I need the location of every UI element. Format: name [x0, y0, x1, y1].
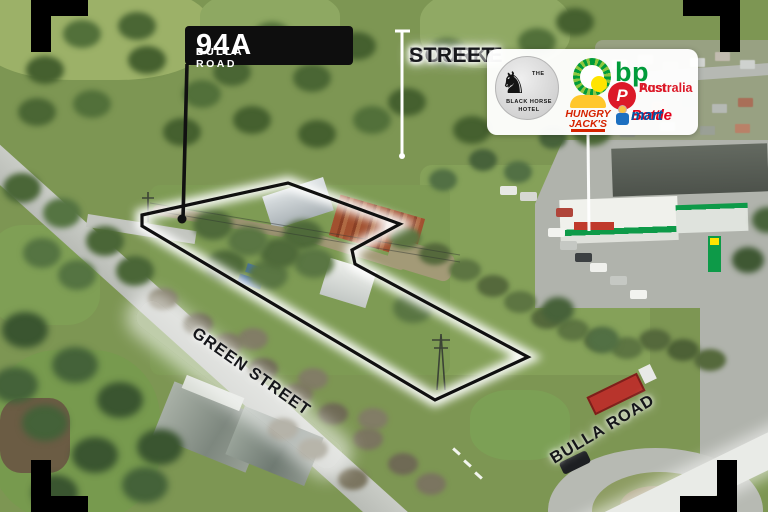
bottlemart-word-blue: mart: [631, 107, 662, 124]
hungry-jacks-bun-icon: [570, 95, 606, 108]
bottlemart-mascot-body: [616, 113, 629, 125]
amenities-pointer-line: [588, 134, 589, 231]
address-plate: 94A BULLA ROAD BULLA: [185, 26, 353, 65]
corner-bracket-top-left: [31, 0, 51, 52]
corner-bracket-bottom-left: [31, 496, 88, 512]
australia-post-monogram: P: [616, 86, 627, 106]
boundary-line: [142, 183, 528, 400]
bp-helios-icon: [573, 58, 611, 96]
black-horse-hotel-logo: ♞ THE BLACK HORSE HOTEL: [495, 56, 559, 120]
bourke-pointer-line: [395, 31, 410, 159]
address-suburb: BULLA: [196, 46, 244, 59]
black-horse-text-2: BLACK HORSE: [506, 99, 552, 105]
amenities-panel: ♞ THE BLACK HORSE HOTEL bp P Australia P…: [487, 49, 698, 135]
black-horse-text-3: HOTEL: [506, 107, 552, 113]
corner-bracket-bottom-right: [680, 496, 737, 512]
boundary-glow: [142, 183, 528, 400]
horse-icon: ♞: [500, 69, 527, 99]
listing-photo-stage: GREEN STREET BULLA ROAD BOURKE STREET 94…: [0, 0, 768, 512]
corner-bracket-top-right: [720, 0, 740, 52]
bp-helios-ring: [580, 65, 604, 89]
hungry-jacks-line2: JACK'S: [563, 119, 613, 130]
bp-helios-core: [591, 76, 607, 92]
bourke-street-line2: STREET: [409, 40, 495, 73]
hungry-jacks-underline: [571, 129, 605, 132]
australia-post-line2: Post: [639, 82, 666, 96]
black-horse-text-1: THE: [532, 71, 545, 77]
